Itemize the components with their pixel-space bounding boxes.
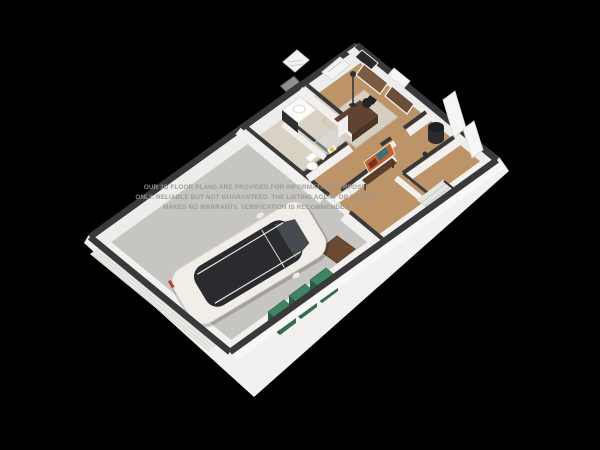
watermark-line-1: OUR 3D FLOOR PLANS ARE PROVIDED FOR INFO…: [144, 184, 371, 191]
laundry-basket: [428, 122, 444, 144]
floorplan-render-canvas: OUR 3D FLOOR PLANS ARE PROVIDED FOR INFO…: [0, 0, 600, 450]
watermark-line-3: MAKES NO WARRANTY. VERIFICATION IS RECOM…: [163, 204, 351, 211]
floorplan-3d-scene: OUR 3D FLOOR PLANS ARE PROVIDED FOR INFO…: [0, 0, 600, 450]
watermark-line-2: ONLY. RELIABLE BUT NOT GUARANTEED. THE L…: [135, 194, 379, 201]
sink-basin: [293, 105, 305, 113]
floor-bowl: [423, 152, 428, 157]
watermark-disclaimer: OUR 3D FLOOR PLANS ARE PROVIDED FOR INFO…: [135, 184, 379, 211]
